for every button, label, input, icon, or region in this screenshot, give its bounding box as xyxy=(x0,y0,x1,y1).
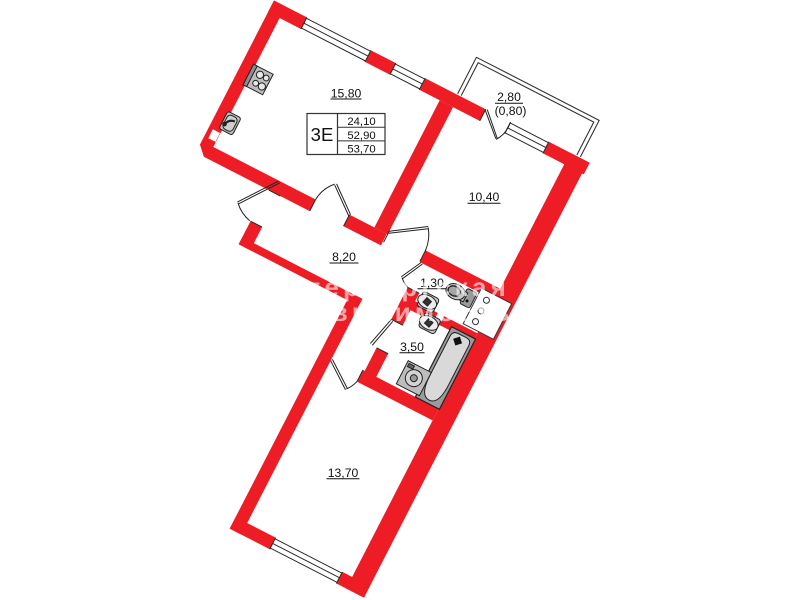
svg-text:Недвижимость: Недвижимость xyxy=(269,297,513,327)
svg-text:(0,80): (0,80) xyxy=(495,104,527,118)
svg-text:3Е: 3Е xyxy=(311,124,334,145)
svg-text:10,40: 10,40 xyxy=(469,190,500,204)
svg-text:24,10: 24,10 xyxy=(347,116,375,128)
svg-text:8,20: 8,20 xyxy=(332,250,356,264)
svg-text:52,90: 52,90 xyxy=(347,130,375,142)
svg-text:2,80: 2,80 xyxy=(497,90,521,104)
svg-text:15,80: 15,80 xyxy=(331,86,362,100)
svg-text:13,70: 13,70 xyxy=(328,466,359,480)
svg-text:3,50: 3,50 xyxy=(400,340,424,354)
svg-text:53,70: 53,70 xyxy=(347,144,375,156)
